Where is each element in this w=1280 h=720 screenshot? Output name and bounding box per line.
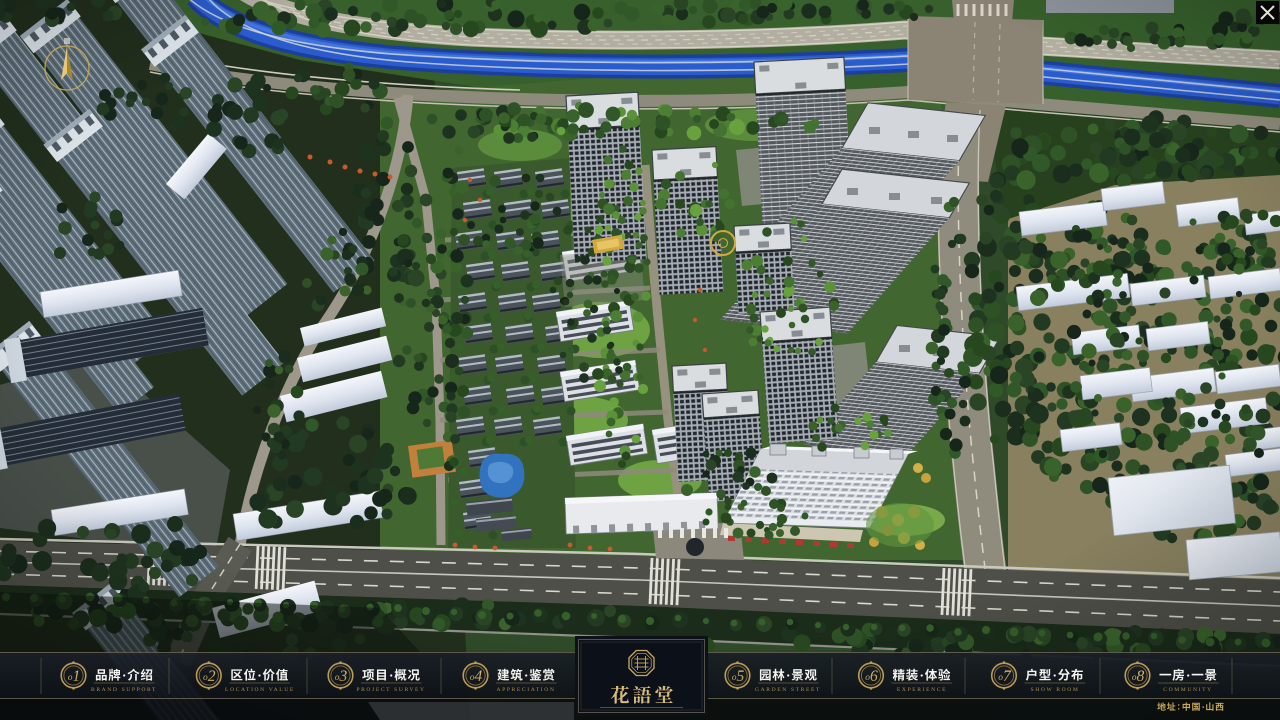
svg-text:COMMUNITY: COMMUNITY — [1163, 687, 1213, 693]
svg-text:PROJECT SURVEY: PROJECT SURVEY — [356, 687, 425, 693]
svg-text:LOCATION VALUE: LOCATION VALUE — [225, 687, 295, 693]
svg-text:SHOW ROOM: SHOW ROOM — [1031, 687, 1080, 693]
svg-text:APPRECIATION: APPRECIATION — [497, 687, 556, 693]
svg-text:BRAND SUPPORT: BRAND SUPPORT — [91, 687, 157, 693]
svg-text:EXPERIENCE: EXPERIENCE — [897, 687, 947, 693]
svg-text:GARDEN STREET: GARDEN STREET — [755, 687, 821, 693]
